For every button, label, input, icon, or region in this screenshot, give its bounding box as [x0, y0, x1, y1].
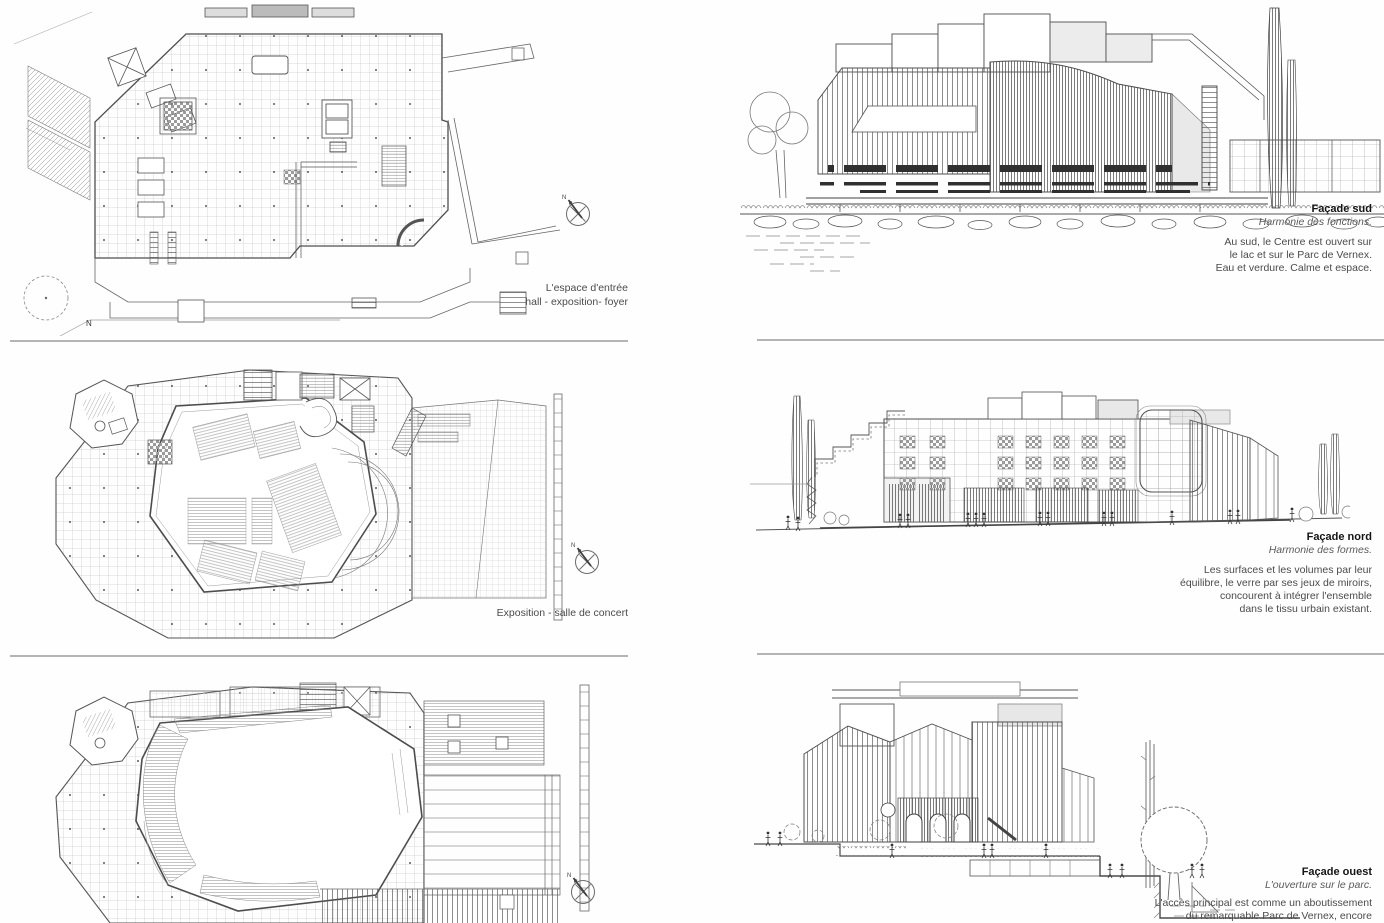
facade-title: Façade nord: [1146, 531, 1372, 544]
compass-north-label: N: [567, 873, 571, 879]
facade-note-ouest: Façade ouest L'ouverture sur le parc. L'…: [1120, 866, 1372, 923]
separator-rule: [757, 339, 1384, 341]
body-line: dans le tissu urbain existant.: [1146, 603, 1372, 616]
brochure-page: N: [0, 0, 1384, 923]
compass-north-label: N: [571, 543, 575, 549]
separator-rule: [10, 340, 628, 342]
north-compass-icon: N: [570, 540, 604, 578]
plan-caption-entrance: L'espace d'entrée hall - exposition- foy…: [428, 281, 628, 309]
elevation-facade-nord: [750, 380, 1350, 545]
facade-title: Façade ouest: [1120, 866, 1372, 879]
caption-line: hall - exposition- foyer: [428, 295, 628, 309]
floor-plan-concert-hall: [0, 350, 648, 650]
facade-body: Au sud, le Centre est ouvert sur le lac …: [1146, 236, 1372, 275]
body-line: équilibre, le verre par ses jeux de miro…: [1146, 577, 1372, 590]
compass-north-label: N: [562, 195, 566, 201]
plan-caption-concert: Exposition - salle de concert: [428, 606, 628, 620]
body-line: concourent à intégrer l'ensemble: [1146, 590, 1372, 603]
facade-subtitle: Harmonie des fonctions.: [1146, 216, 1372, 229]
caption-line: Exposition - salle de concert: [428, 606, 628, 620]
caption-line: L'espace d'entrée: [428, 281, 628, 295]
facade-body: L'accès principal est comme un aboutisse…: [1120, 897, 1372, 923]
facade-note-nord: Façade nord Harmonie des formes. Les sur…: [1146, 531, 1372, 616]
plan-north-label: N: [86, 319, 92, 328]
facade-subtitle: Harmonie des formes.: [1146, 544, 1372, 557]
body-line: Les surfaces et les volumes par leur: [1146, 564, 1372, 577]
facade-subtitle: L'ouverture sur le parc.: [1120, 879, 1372, 892]
facade-title: Façade sud: [1146, 203, 1372, 216]
facade-note-sud: Façade sud Harmonie des fonctions. Au su…: [1146, 203, 1372, 275]
body-line: du remarquable Parc de Vernex, encore: [1120, 910, 1372, 923]
separator-rule: [10, 655, 628, 657]
body-line: le lac et sur le Parc de Vernex.: [1146, 249, 1372, 262]
north-compass-icon: N: [561, 192, 595, 230]
body-line: Eau et verdure. Calme et espace.: [1146, 262, 1372, 275]
floor-plan-large-hall: [0, 657, 648, 923]
body-line: L'accès principal est comme un aboutisse…: [1120, 897, 1372, 910]
north-compass-icon: N: [566, 870, 600, 908]
facade-body: Les surfaces et les volumes par leur équ…: [1146, 564, 1372, 616]
separator-rule: [757, 653, 1384, 655]
body-line: Au sud, le Centre est ouvert sur: [1146, 236, 1372, 249]
